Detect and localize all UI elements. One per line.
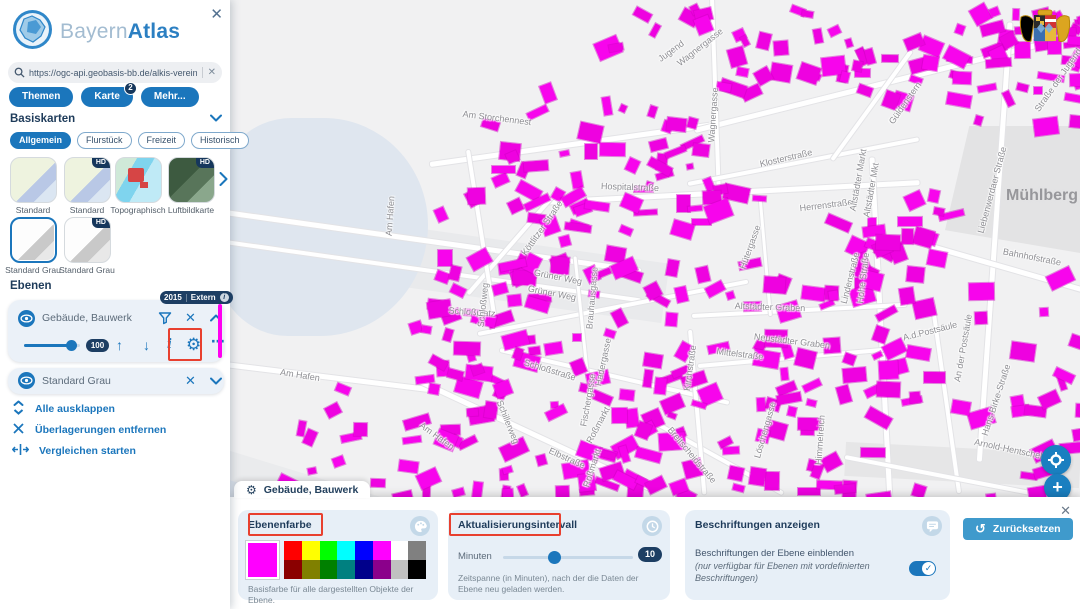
building [539, 82, 556, 103]
building [585, 143, 597, 158]
street-label: Bahnhofstraße [1002, 246, 1062, 267]
building [902, 229, 913, 245]
building [705, 280, 726, 297]
gear-icon: ⚙ [246, 483, 257, 497]
building [781, 367, 789, 380]
building [620, 389, 635, 400]
building [753, 196, 767, 202]
thumbnails-next-icon[interactable] [219, 172, 228, 186]
basemap-tab-allgemein[interactable]: Allgemein [10, 132, 71, 149]
street-label: Schillerweg [495, 399, 522, 445]
color-palette-grid [284, 541, 426, 579]
building [599, 143, 624, 157]
building [670, 219, 694, 240]
layer-name: Standard Grau [42, 375, 111, 387]
move-layer-up-icon[interactable]: ↑ [116, 337, 123, 353]
sidebar-link-1[interactable]: Überlagerungen entfernen [12, 422, 166, 438]
basemap-thumb-label: Standard [5, 205, 61, 215]
building [517, 484, 528, 497]
building [836, 385, 852, 405]
building [828, 25, 841, 37]
street-label: Herrenstraße [799, 197, 853, 213]
hd-badge: HD [92, 158, 110, 168]
search-clear-icon[interactable]: ✕ [208, 67, 216, 78]
building [643, 353, 663, 369]
speech-bubble-icon [922, 516, 942, 536]
building [840, 71, 850, 82]
place-label-muehlberg: Mühlberg [1006, 187, 1078, 205]
building [1038, 389, 1061, 409]
building [335, 383, 351, 396]
building [740, 35, 750, 47]
info-circle-icon[interactable]: i [220, 293, 229, 302]
app-title-light: Bayern [60, 20, 128, 43]
building [829, 291, 840, 302]
layer-info-icon[interactable]: i [167, 337, 172, 352]
building [492, 172, 509, 187]
building [951, 400, 971, 416]
layer-card-gebaeude: 2015 Extern i Gebäude, Bauwerk ✕ 100 [8, 300, 224, 362]
building [843, 367, 868, 383]
basemap-thumb-label: Topographisch [110, 205, 166, 215]
street-label: Am Hafen [279, 367, 320, 383]
building [332, 455, 345, 467]
sidebar-link-0[interactable]: Alle ausklappen [12, 400, 115, 418]
building [898, 217, 922, 226]
badge-year: 2015 [164, 293, 182, 302]
palette-swatch[interactable] [391, 541, 409, 560]
palette-swatch[interactable] [355, 560, 373, 579]
building [882, 55, 898, 62]
building [910, 392, 921, 404]
sidebar-link-label: Überlagerungen entfernen [35, 424, 166, 436]
building [756, 397, 764, 410]
palette-swatch[interactable] [408, 541, 426, 560]
labels-card-title: Beschriftungen anzeigen [695, 519, 820, 531]
building [688, 205, 703, 211]
road-segment [759, 196, 772, 316]
basiskarten-heading: Basiskarten [10, 113, 75, 125]
building [807, 399, 817, 407]
remove-layer-icon[interactable]: ✕ [185, 310, 196, 326]
labels-toggle-text: Beschriftungen der Ebene einblenden [695, 548, 854, 559]
building [573, 334, 581, 341]
building [695, 266, 710, 284]
layer-card-standard-grau: Standard Grau ✕ [8, 368, 224, 394]
opacity-value-badge: 100 [86, 339, 109, 352]
building [354, 423, 367, 436]
show-labels-card: Beschriftungen anzeigen Beschriftungen d… [685, 510, 950, 600]
labels-toggle-note: (nur verfügbar für Ebenen mit vordefinie… [695, 561, 895, 584]
basemap-tab-freizeit[interactable]: Freizeit [138, 132, 186, 149]
nav-button-karte[interactable]: Karte2 [81, 87, 133, 107]
building [635, 447, 661, 463]
basemap-tab-historisch[interactable]: Historisch [191, 132, 249, 149]
badge-extern: Extern [191, 293, 216, 302]
building [876, 235, 901, 250]
palette-swatch[interactable] [302, 541, 320, 560]
building [632, 6, 651, 22]
sidebar-close-icon[interactable]: ✕ [210, 5, 223, 23]
building [571, 171, 583, 188]
building [802, 286, 827, 302]
building [797, 488, 819, 495]
sidebar-panel: ✕ BayernAtlas https://ogc-api.geobasis-b… [0, 0, 230, 609]
building [978, 83, 997, 92]
building [906, 346, 931, 362]
app-title: BayernAtlas [60, 20, 180, 44]
building [794, 348, 817, 369]
building [666, 313, 678, 327]
building [749, 467, 766, 486]
building [443, 328, 454, 342]
layer-settings-panel: ⚙ Gebäude, Bauwerk ✕ Ebenenfarbe Basisfa… [230, 497, 1080, 609]
palette-swatch[interactable] [337, 541, 355, 560]
building [454, 342, 480, 356]
layer-settings-gear-icon[interactable]: ⚙ [186, 335, 201, 355]
palette-swatch[interactable] [408, 560, 426, 579]
minutes-label: Minuten [458, 551, 492, 562]
palette-swatch[interactable] [391, 560, 409, 579]
building [797, 62, 821, 84]
building [416, 467, 442, 490]
street-label: Hadergasse [593, 337, 613, 387]
layer-badges: 2015 Extern i [160, 291, 233, 304]
building [1033, 116, 1059, 136]
interval-slider-handle[interactable] [548, 551, 561, 564]
building [303, 429, 318, 447]
geolocate-icon [1048, 452, 1064, 468]
building [733, 483, 745, 492]
building [308, 468, 317, 475]
building [969, 3, 992, 26]
building [1040, 308, 1048, 316]
building [503, 465, 514, 473]
basemap-thumb-label: Luftbildkarte [163, 205, 219, 215]
basemap-thumb-label: Standard Grau [59, 265, 115, 275]
basemap-thumb-topographisch[interactable] [115, 157, 162, 203]
building [467, 409, 479, 417]
basemap-thumb-label: Standard [59, 205, 115, 215]
building [434, 207, 449, 223]
street-label: A.d.Postsäule [902, 319, 958, 342]
refresh-interval-card: Aktualisierungsintervall Minuten 10 Zeit… [448, 510, 670, 600]
building [876, 381, 899, 397]
building [872, 325, 889, 344]
reset-label: Zurücksetzen [993, 523, 1061, 535]
basemap-thumb-standard[interactable]: HD [64, 157, 111, 203]
building [723, 447, 739, 455]
building [802, 379, 821, 393]
building [1069, 334, 1080, 352]
palette-swatch[interactable] [373, 560, 391, 579]
nav-button-themen[interactable]: Themen [9, 87, 73, 107]
search-input[interactable]: https://ogc-api.geobasis-bb.de/alkis-ver… [8, 62, 222, 83]
palette-swatch[interactable] [373, 541, 391, 560]
building [787, 407, 797, 418]
palette-icon [410, 516, 430, 536]
building [825, 214, 852, 233]
search-icon [14, 67, 25, 78]
palette-swatch[interactable] [320, 560, 338, 579]
building [438, 250, 452, 266]
sidebar-link-label: Alle ausklappen [35, 403, 115, 415]
labels-toggle-switch[interactable]: ✓ [909, 561, 936, 576]
palette-swatch[interactable] [284, 560, 302, 579]
building [492, 166, 515, 173]
palette-swatch[interactable] [337, 560, 355, 579]
building [904, 190, 926, 211]
layer-name: Gebäude, Bauwerk [42, 312, 132, 324]
app-title-bold: Atlas [128, 20, 180, 43]
current-color-swatch[interactable] [246, 541, 279, 579]
interval-card-title: Aktualisierungsintervall [458, 519, 577, 531]
building [802, 10, 813, 18]
settings-close-icon[interactable]: ✕ [1060, 503, 1071, 519]
building [1073, 426, 1080, 441]
building [660, 394, 685, 415]
layer-color-card: Ebenenfarbe Basisfarbe für alle dargeste… [238, 510, 438, 600]
building [324, 402, 341, 418]
building [852, 60, 862, 71]
reset-icon: ↺ [975, 521, 986, 537]
palette-swatch[interactable] [320, 541, 338, 560]
building [974, 312, 986, 325]
building [560, 150, 570, 157]
building [955, 24, 966, 35]
building [535, 453, 547, 466]
building [675, 286, 689, 303]
opacity-slider-fill [24, 344, 72, 347]
settings-tab-title: Gebäude, Bauwerk [264, 484, 359, 496]
building [1016, 83, 1029, 93]
opacity-slider-handle[interactable] [66, 340, 77, 351]
basemap-thumb-standard-grau[interactable] [10, 217, 57, 263]
building [666, 117, 686, 132]
road-segment [688, 137, 919, 186]
building [1034, 87, 1042, 94]
building [726, 46, 746, 67]
building [428, 383, 439, 395]
building [922, 55, 939, 71]
building [773, 40, 788, 55]
basemap-filter-tabs: AllgemeinFlurstückFreizeitHistorisch [10, 132, 249, 149]
building [371, 479, 385, 487]
hd-badge: HD [196, 158, 214, 168]
ebenen-heading: Ebenen [10, 280, 52, 292]
building [864, 407, 892, 430]
color-card-caption: Basisfarbe für alle dargestellten Objekt… [248, 584, 438, 605]
move-layer-down-icon[interactable]: ↓ [143, 337, 150, 353]
layer-visibility-eye-icon[interactable] [18, 372, 35, 389]
building [447, 368, 464, 380]
building [649, 23, 661, 38]
building [686, 164, 693, 170]
building [1064, 93, 1080, 104]
building [764, 276, 786, 294]
filter-icon[interactable] [158, 311, 172, 325]
building [524, 160, 549, 172]
building [398, 460, 418, 473]
bayernatlas-logo-icon [12, 9, 53, 50]
bavaria-coat-of-arms-icon [1018, 7, 1072, 49]
basemap-thumb-standard[interactable] [10, 157, 57, 203]
plus-icon: + [1052, 477, 1063, 498]
palette-swatch[interactable] [355, 541, 373, 560]
basemap-thumb-luftbildkarte[interactable]: HD [168, 157, 215, 203]
sidebar-link-2[interactable]: Vergleichen starten [12, 444, 136, 458]
building [625, 158, 641, 175]
building [654, 377, 667, 394]
building [969, 282, 995, 299]
reset-button[interactable]: ↺ Zurücksetzen [963, 518, 1073, 540]
basemap-tab-flurstück[interactable]: Flurstück [77, 132, 132, 149]
building [1070, 73, 1080, 86]
building [666, 259, 680, 276]
interval-value-badge: 10 [638, 547, 662, 562]
building [899, 287, 915, 305]
building [1076, 404, 1080, 417]
building [403, 436, 421, 445]
search-value: https://ogc-api.geobasis-bb.de/alkis-ver… [29, 68, 197, 78]
building [619, 225, 633, 236]
building [923, 372, 944, 383]
nav-buttons: ThemenKarte2Mehr... [9, 87, 199, 107]
hd-badge: HD [92, 218, 110, 228]
building [618, 104, 627, 113]
building [692, 144, 709, 158]
building [647, 105, 657, 118]
street-label: Hospitalstraße [601, 181, 659, 193]
building [1053, 367, 1075, 384]
building [728, 465, 745, 481]
expand-layer-chevron-down-icon[interactable] [210, 377, 222, 385]
building [946, 92, 972, 108]
palette-swatch[interactable] [302, 560, 320, 579]
building [927, 250, 948, 268]
building [765, 472, 779, 490]
building [612, 408, 627, 423]
basemap-thumb-standard-grau[interactable]: HD [64, 217, 111, 263]
road-segment [225, 362, 429, 392]
building [757, 32, 773, 50]
color-card-title: Ebenenfarbe [248, 519, 312, 531]
clock-icon [642, 516, 662, 536]
building [861, 448, 885, 458]
nav-button-mehr[interactable]: Mehr... [141, 87, 199, 107]
street-label: Neustädter Graben [753, 331, 830, 350]
compare-icon [12, 444, 29, 458]
badge-divider [186, 294, 187, 302]
remove-layer-icon[interactable]: ✕ [185, 373, 196, 389]
expand-all-icon [12, 400, 25, 418]
building [726, 291, 735, 300]
building [974, 115, 984, 126]
building [845, 38, 853, 48]
building [953, 72, 972, 85]
building [934, 207, 945, 216]
building [1070, 115, 1080, 129]
building [736, 67, 748, 77]
building [770, 62, 792, 82]
building [989, 6, 1001, 17]
sidebar-link-label: Vergleichen starten [39, 445, 136, 457]
building [559, 234, 571, 247]
building [835, 484, 856, 494]
interval-card-caption: Zeitspanne (in Minuten), nach der die Da… [458, 573, 658, 594]
building [928, 189, 941, 202]
building [507, 198, 524, 214]
building [906, 266, 925, 283]
building [421, 325, 431, 333]
building [1010, 342, 1036, 362]
layer-color-strip [218, 304, 222, 358]
chevron-down-icon[interactable] [210, 114, 222, 122]
settings-tab-header[interactable]: ⚙ Gebäude, Bauwerk [234, 481, 370, 498]
building [878, 361, 898, 380]
remove-overlays-icon [12, 422, 25, 438]
building [545, 404, 567, 421]
building [649, 138, 668, 152]
palette-swatch[interactable] [284, 541, 302, 560]
building [545, 342, 564, 356]
bayernatlas-app: Am StorchennestWagnergasseJugendStraße d… [0, 0, 1080, 609]
building [813, 28, 824, 43]
building [507, 294, 521, 306]
layer-visibility-eye-icon[interactable] [18, 310, 35, 327]
search-divider [202, 67, 203, 78]
building [467, 188, 485, 204]
basemap-thumb-label: Standard Grau [5, 265, 61, 275]
nav-button-count-badge: 2 [124, 82, 137, 95]
toggle-check-icon: ✓ [922, 562, 935, 575]
geolocate-button[interactable] [1041, 445, 1071, 475]
building [645, 476, 667, 495]
interval-slider-track[interactable] [503, 556, 633, 559]
building [601, 97, 612, 116]
